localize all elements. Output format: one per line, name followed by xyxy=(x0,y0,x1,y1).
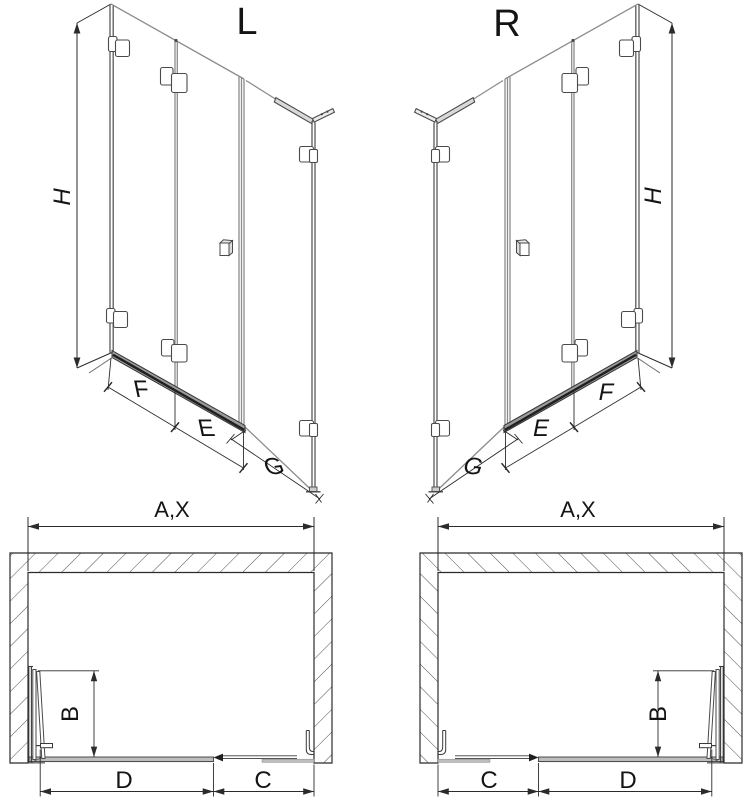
dim-label-ax-right: A,X xyxy=(560,497,596,522)
dim-label-c-left: C xyxy=(254,767,271,794)
dim-label-f-left: F xyxy=(131,376,151,403)
dim-label-g-right: G xyxy=(462,452,484,481)
dim-label-h-right: H xyxy=(640,187,667,205)
drawing-canvas: L H F E G R H F E G A,X B D C A,X B C D xyxy=(0,0,752,800)
dim-label-d-left: D xyxy=(115,767,132,794)
drawing-svg: L H F E G R H F E G A,X B D C A,X B C D xyxy=(0,0,752,800)
iso-left-title: L xyxy=(236,1,257,43)
dim-label-f-right: F xyxy=(599,379,615,406)
dim-label-b-left: B xyxy=(57,706,84,722)
dim-label-d-right: D xyxy=(619,767,636,794)
dim-label-g-left: G xyxy=(260,453,289,481)
dim-label-ax-left: A,X xyxy=(154,497,190,522)
dim-label-e-left: E xyxy=(196,415,218,442)
dim-label-b-right: B xyxy=(645,706,672,722)
dim-label-c-right: C xyxy=(480,767,497,794)
plan-right-view xyxy=(420,517,742,797)
dim-label-e-right: E xyxy=(533,415,550,442)
plan-left-view xyxy=(10,517,332,797)
iso-right-title: R xyxy=(493,3,520,45)
dim-label-h-left: H xyxy=(49,188,76,206)
